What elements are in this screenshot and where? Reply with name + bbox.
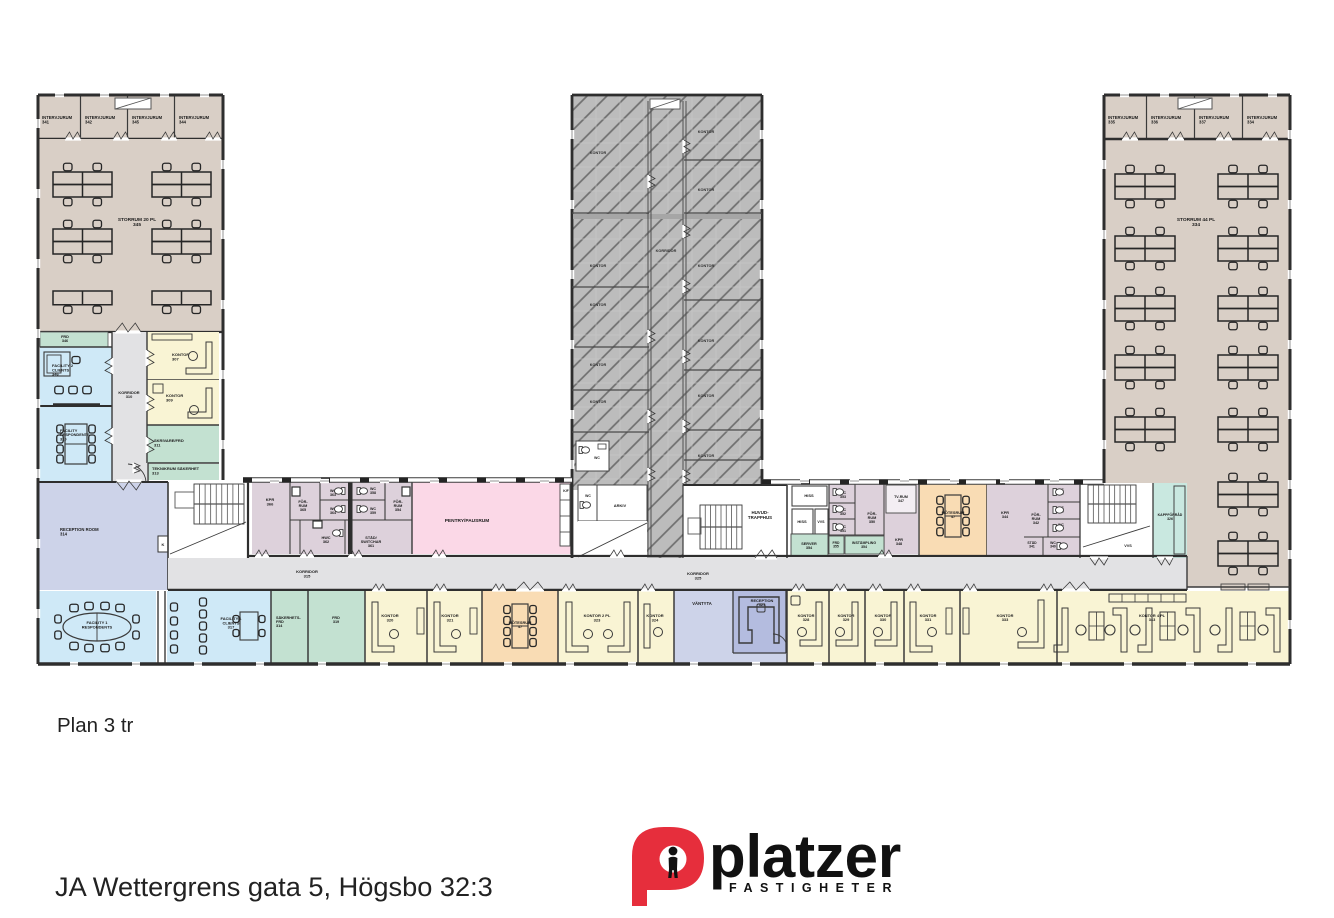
- svg-text:344: 344: [179, 120, 187, 125]
- svg-text:334: 334: [1247, 120, 1255, 125]
- svg-text:310: 310: [126, 394, 133, 399]
- svg-text:ARKIV: ARKIV: [614, 503, 627, 508]
- svg-text:326: 326: [1167, 517, 1173, 521]
- svg-text:WC: WC: [594, 456, 600, 460]
- svg-text:KONTOR: KONTOR: [698, 394, 715, 398]
- svg-text:47: 47: [518, 624, 522, 629]
- svg-text:STORRUM 44 PL: STORRUM 44 PL: [1177, 217, 1215, 223]
- svg-text:330: 330: [880, 617, 887, 622]
- svg-text:KONTOR: KONTOR: [698, 339, 715, 343]
- svg-text:341: 341: [42, 120, 50, 125]
- svg-text:VÄNTYTA: VÄNTYTA: [692, 601, 711, 606]
- svg-text:319: 319: [333, 620, 339, 624]
- svg-text:KONTOR: KONTOR: [698, 264, 715, 268]
- svg-text:347: 347: [898, 499, 904, 503]
- svg-text:354: 354: [861, 545, 867, 549]
- svg-text:328: 328: [803, 617, 810, 622]
- svg-text:KORRIDOR: KORRIDOR: [656, 249, 677, 253]
- svg-text:313: 313: [152, 470, 159, 475]
- svg-text:314: 314: [276, 624, 283, 628]
- svg-text:VVS: VVS: [1124, 544, 1132, 548]
- svg-text:345: 345: [133, 222, 141, 228]
- svg-text:366: 366: [267, 501, 274, 506]
- svg-text:329: 329: [843, 617, 850, 622]
- svg-text:345: 345: [132, 120, 140, 125]
- svg-text:KONTOR: KONTOR: [590, 264, 607, 268]
- svg-text:47: 47: [951, 514, 955, 519]
- svg-text:KONTOR: KONTOR: [590, 151, 607, 155]
- svg-text:TRAPPHUS: TRAPPHUS: [748, 515, 772, 520]
- svg-text:FASTIGHETER: FASTIGHETER: [729, 881, 899, 895]
- svg-text:331: 331: [925, 617, 932, 622]
- svg-text:TEKNIKRUM SÄKERHET: TEKNIKRUM SÄKERHET: [152, 466, 200, 471]
- svg-text:WC: WC: [585, 494, 591, 498]
- svg-text:354: 354: [395, 508, 402, 512]
- svg-text:334: 334: [1192, 222, 1200, 228]
- svg-text:342: 342: [85, 120, 93, 125]
- svg-text:333: 333: [1002, 617, 1009, 622]
- svg-text:KONTOR: KONTOR: [590, 400, 607, 404]
- svg-text:323: 323: [594, 617, 601, 622]
- svg-text:321: 321: [447, 617, 454, 622]
- svg-text:311: 311: [154, 442, 161, 447]
- svg-text:361: 361: [368, 544, 374, 548]
- svg-text:KONTOR: KONTOR: [698, 130, 715, 134]
- svg-text:341: 341: [1029, 545, 1035, 549]
- svg-text:325: 325: [695, 575, 702, 580]
- svg-text:HISS: HISS: [797, 519, 807, 524]
- svg-text:346: 346: [62, 339, 68, 343]
- svg-text:358: 358: [370, 491, 376, 495]
- svg-text:K: K: [162, 542, 165, 547]
- svg-text:336: 336: [1151, 120, 1159, 125]
- svg-text:359: 359: [370, 511, 376, 515]
- svg-text:342: 342: [1033, 521, 1039, 525]
- svg-text:337: 337: [1199, 120, 1207, 125]
- svg-text:365: 365: [300, 508, 306, 512]
- svg-text:320: 320: [387, 617, 394, 622]
- svg-text:354: 354: [806, 546, 813, 550]
- svg-text:KONTOR: KONTOR: [698, 454, 715, 458]
- svg-text:KONTOR: KONTOR: [590, 303, 607, 307]
- svg-text:KONTOR: KONTOR: [590, 363, 607, 367]
- svg-text:355: 355: [833, 545, 839, 549]
- svg-text:KONTOR: KONTOR: [698, 188, 715, 192]
- svg-text:362: 362: [323, 540, 329, 544]
- svg-text:317: 317: [228, 625, 235, 630]
- svg-text:324: 324: [652, 617, 659, 622]
- svg-text:315: 315: [304, 573, 311, 578]
- svg-text:307: 307: [172, 356, 179, 361]
- svg-text:348: 348: [896, 542, 902, 546]
- svg-text:335: 335: [1108, 120, 1116, 125]
- svg-text:PENTRY/PAUSRUM: PENTRY/PAUSRUM: [445, 518, 490, 524]
- svg-text:VVS: VVS: [817, 520, 825, 524]
- svg-text:344: 344: [1002, 515, 1009, 519]
- svg-text:HISS: HISS: [804, 493, 814, 498]
- svg-text:314: 314: [60, 532, 68, 537]
- svg-text:platzer: platzer: [709, 823, 901, 890]
- svg-text:340: 340: [1050, 545, 1056, 549]
- svg-text:350: 350: [869, 520, 875, 524]
- svg-text:K/F: K/F: [563, 489, 568, 493]
- svg-text:309: 309: [166, 397, 173, 402]
- svg-text:STORRUM 20 PL: STORRUM 20 PL: [118, 217, 156, 223]
